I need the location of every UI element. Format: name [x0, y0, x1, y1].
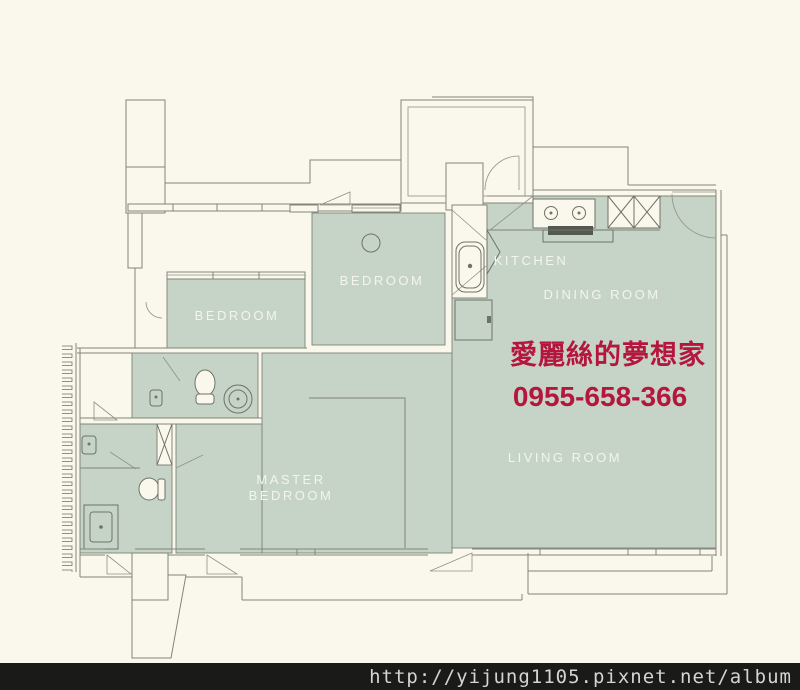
door-swing-icon — [94, 402, 117, 420]
bedroom-middle-label: BEDROOM — [340, 273, 425, 288]
window-band-icon — [352, 205, 400, 212]
door-swing-icon — [320, 192, 350, 205]
master-bedroom-floor — [262, 353, 452, 553]
door-swing-icon — [107, 555, 131, 574]
floor-plan-scan: BEDROOM BEDROOM KITCHEN DINING ROOM LIVI… — [0, 0, 800, 690]
watermark-title: 愛麗絲的夢想家 — [510, 333, 690, 372]
faucet-icon — [468, 264, 472, 268]
watermark-phone: 0955-658-366 — [510, 381, 690, 413]
chimney-shaft-icon — [126, 100, 165, 213]
door-swing-icon — [207, 555, 237, 574]
entry-foyer — [401, 97, 533, 210]
footer-url-bar: http://yijung1105.pixnet.net/album — [0, 663, 800, 690]
master-bedroom-label-line2: BEDROOM — [249, 488, 334, 503]
hall-door-arc-icon — [146, 302, 162, 318]
master-bedroom-label-line1: MASTER — [256, 472, 325, 487]
footer-url: http://yijung1105.pixnet.net/album — [369, 666, 792, 688]
bedroom-left-details — [167, 272, 305, 279]
bedroom-left-label: BEDROOM — [195, 308, 280, 323]
balcony-column — [132, 553, 168, 600]
top-wall — [165, 160, 401, 183]
dining-room-label: DINING ROOM — [543, 287, 660, 302]
kitchen-label: KITCHEN — [494, 253, 569, 268]
window-band-icon — [290, 205, 318, 212]
window-band-icon — [167, 272, 305, 279]
bottom-edge — [80, 549, 727, 658]
shoe-cabinet — [446, 163, 483, 210]
living-room-label: LIVING ROOM — [508, 450, 622, 465]
door-swing-icon — [430, 553, 472, 571]
louver-trellis-icon — [62, 343, 76, 572]
pillar — [128, 213, 142, 268]
toilet-icon — [139, 478, 159, 500]
toilet-icon — [195, 370, 215, 396]
kitchen-dining-living-floor — [452, 196, 716, 548]
